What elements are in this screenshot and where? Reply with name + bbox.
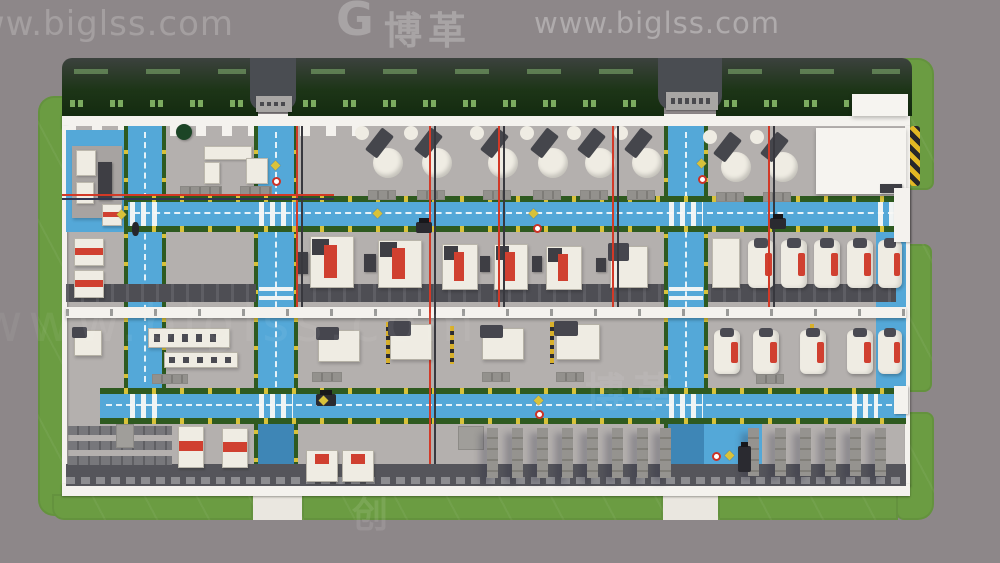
crane-rail-red xyxy=(498,126,500,307)
crane-rail-red xyxy=(768,126,770,307)
pallet-group xyxy=(368,190,396,200)
vertical-lathe xyxy=(478,130,522,184)
machine xyxy=(178,426,204,468)
cabinet xyxy=(76,150,96,176)
machine xyxy=(74,270,104,298)
driveway xyxy=(663,494,718,520)
storage-rack xyxy=(512,428,523,478)
forklift xyxy=(738,446,751,472)
pallet-group xyxy=(417,190,445,200)
pallet-group xyxy=(756,374,784,384)
pallet-group xyxy=(627,190,655,200)
scene xyxy=(0,0,1000,563)
main-road xyxy=(128,202,908,226)
pallet-group xyxy=(483,190,511,200)
lane-line xyxy=(106,404,902,406)
machining-center xyxy=(781,240,807,288)
storage-rack xyxy=(587,428,598,478)
machine xyxy=(306,450,338,482)
storage-rack xyxy=(562,428,573,478)
pallet-group xyxy=(533,190,561,200)
machine xyxy=(74,330,102,356)
control-cabinet xyxy=(532,256,542,272)
crosswalk xyxy=(669,394,703,418)
machine xyxy=(318,330,360,362)
machining-center xyxy=(847,330,873,374)
cnc-machine xyxy=(310,236,354,288)
no-entry-sign xyxy=(535,410,544,419)
crane-rail-red xyxy=(62,194,334,196)
storage-rack xyxy=(537,428,548,478)
machining-center xyxy=(814,240,840,288)
machine xyxy=(556,324,600,360)
driveway xyxy=(253,494,302,520)
storage-rack xyxy=(875,428,886,476)
crane-rail-red xyxy=(429,126,431,486)
machining-center xyxy=(878,330,902,374)
road-edge xyxy=(128,226,908,232)
crane-rail xyxy=(617,126,619,307)
cnc-machine xyxy=(378,240,422,288)
machining-center xyxy=(800,330,826,374)
storage-rack xyxy=(68,456,172,465)
machining-center xyxy=(714,330,740,374)
lane-line xyxy=(134,212,904,214)
vertical-lathe xyxy=(363,130,407,184)
pallet-group xyxy=(716,192,744,202)
crosswalk xyxy=(852,394,878,418)
lane-line xyxy=(144,132,146,382)
gate-sign xyxy=(666,92,718,110)
pallet-group xyxy=(152,374,188,384)
lathe xyxy=(148,328,230,348)
crosswalk xyxy=(669,287,703,304)
vertical-lathe xyxy=(528,130,572,184)
crane-rail-red xyxy=(612,126,614,307)
forklift xyxy=(770,218,786,229)
workbench xyxy=(204,146,252,160)
cnc-machine xyxy=(546,246,582,290)
machine xyxy=(342,450,374,482)
storage-rack xyxy=(850,428,861,476)
control-cabinet xyxy=(596,258,606,272)
no-entry-sign xyxy=(533,224,542,233)
storage-rack xyxy=(660,428,671,478)
lane-line xyxy=(685,132,687,417)
road-edge xyxy=(100,418,906,424)
lathe xyxy=(164,352,238,368)
wall-segment xyxy=(894,386,908,414)
storage-rack xyxy=(612,428,623,478)
vertical-lathe xyxy=(758,134,802,188)
crane-rail xyxy=(434,126,436,486)
machine xyxy=(458,426,484,450)
workbench xyxy=(204,162,220,184)
pillar xyxy=(450,326,454,364)
storage-rack xyxy=(800,428,811,476)
crosswalk xyxy=(669,202,703,226)
vertical-lathe xyxy=(711,134,755,188)
pallet-group xyxy=(482,372,510,382)
forklift xyxy=(416,222,432,233)
crosswalk xyxy=(259,394,293,418)
machining-center xyxy=(878,240,902,288)
grass-bottom xyxy=(718,494,898,520)
wall-segment xyxy=(894,188,910,242)
machine xyxy=(116,424,134,448)
storage-rack xyxy=(487,428,498,478)
crosswalk xyxy=(259,202,293,226)
factory-layout-render: www.biglss.com G 博革 www.biglss.com www.b… xyxy=(0,0,1000,563)
machine xyxy=(712,238,740,288)
lane-line xyxy=(275,132,277,417)
machine xyxy=(74,238,104,266)
machine xyxy=(482,328,524,360)
crane-rail-red xyxy=(296,126,298,307)
crane-rail xyxy=(503,126,505,307)
crane-rail xyxy=(62,198,334,200)
grass-bottom xyxy=(52,494,253,520)
main-road xyxy=(100,394,906,418)
pallet-group xyxy=(312,372,342,382)
gate-barrier xyxy=(910,126,920,186)
no-entry-sign xyxy=(712,452,721,461)
storage-rack xyxy=(825,428,836,476)
crane-rail xyxy=(301,126,303,307)
machine xyxy=(222,428,248,468)
roof-section xyxy=(62,58,258,116)
cabinet xyxy=(76,182,94,204)
grass-bottom xyxy=(302,494,663,520)
round-table xyxy=(176,124,192,140)
cnc-machine xyxy=(442,244,478,290)
machining-center xyxy=(748,240,774,288)
machine xyxy=(390,324,432,360)
cabinet xyxy=(246,158,268,184)
machining-center xyxy=(753,330,779,374)
pallet-group xyxy=(580,190,608,200)
aisle-edge xyxy=(162,126,166,388)
crosswalk xyxy=(130,394,162,418)
no-entry-sign xyxy=(698,175,707,184)
crosswalk xyxy=(259,287,293,304)
control-cabinet xyxy=(364,254,376,272)
storage-rack xyxy=(775,428,786,476)
gate-sign xyxy=(256,96,292,112)
storage-rack xyxy=(637,428,648,478)
worker xyxy=(132,222,139,236)
machining-center xyxy=(847,240,873,288)
roof-section xyxy=(288,58,664,116)
partition-wall xyxy=(66,307,906,318)
pallet-group xyxy=(556,372,584,382)
machine xyxy=(610,246,648,288)
no-entry-sign xyxy=(272,177,281,186)
office-roof-top xyxy=(852,94,908,116)
control-cabinet xyxy=(480,256,490,272)
vertical-lathe xyxy=(622,130,666,184)
